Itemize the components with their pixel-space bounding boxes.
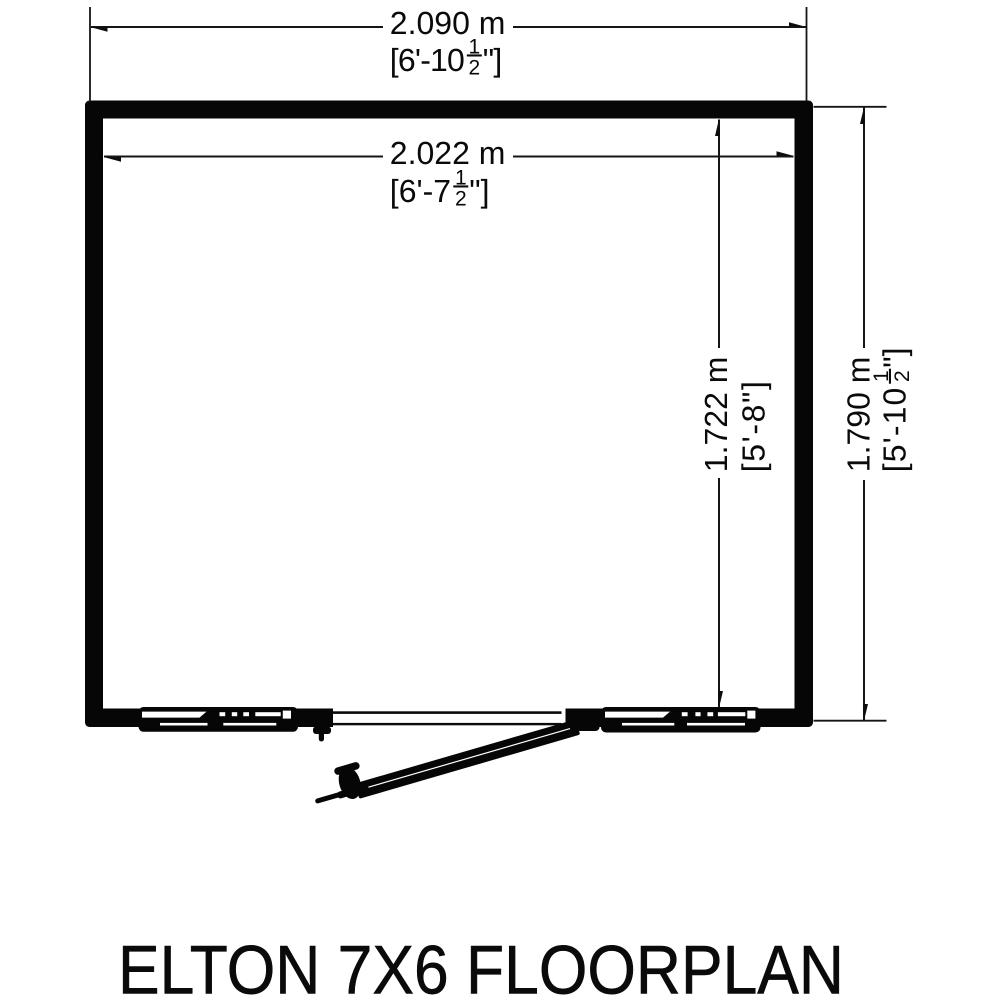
svg-text:2.090 m: 2.090 m (390, 5, 506, 41)
svg-text:[6'-10: [6'-10 (390, 42, 464, 78)
svg-text:"]: "] (483, 42, 502, 78)
svg-text:2: 2 (468, 57, 480, 80)
svg-text:2: 2 (455, 188, 467, 211)
svg-text:"]: "] (877, 347, 913, 367)
svg-text:2.022 m: 2.022 m (390, 135, 506, 171)
svg-text:[6'-7: [6'-7 (390, 173, 451, 209)
svg-text:ELTON 7X6 FLOORPLAN: ELTON 7X6 FLOORPLAN (118, 932, 844, 1000)
svg-text:[5'-10: [5'-10 (877, 387, 913, 473)
svg-text:1.722 m: 1.722 m (698, 357, 734, 473)
svg-text:1: 1 (468, 36, 480, 59)
svg-text:[5'-8"]: [5'-8"] (736, 379, 772, 472)
svg-text:1: 1 (455, 167, 467, 190)
svg-text:2: 2 (891, 370, 914, 382)
svg-text:"]: "] (469, 173, 489, 209)
svg-text:1: 1 (870, 370, 893, 382)
